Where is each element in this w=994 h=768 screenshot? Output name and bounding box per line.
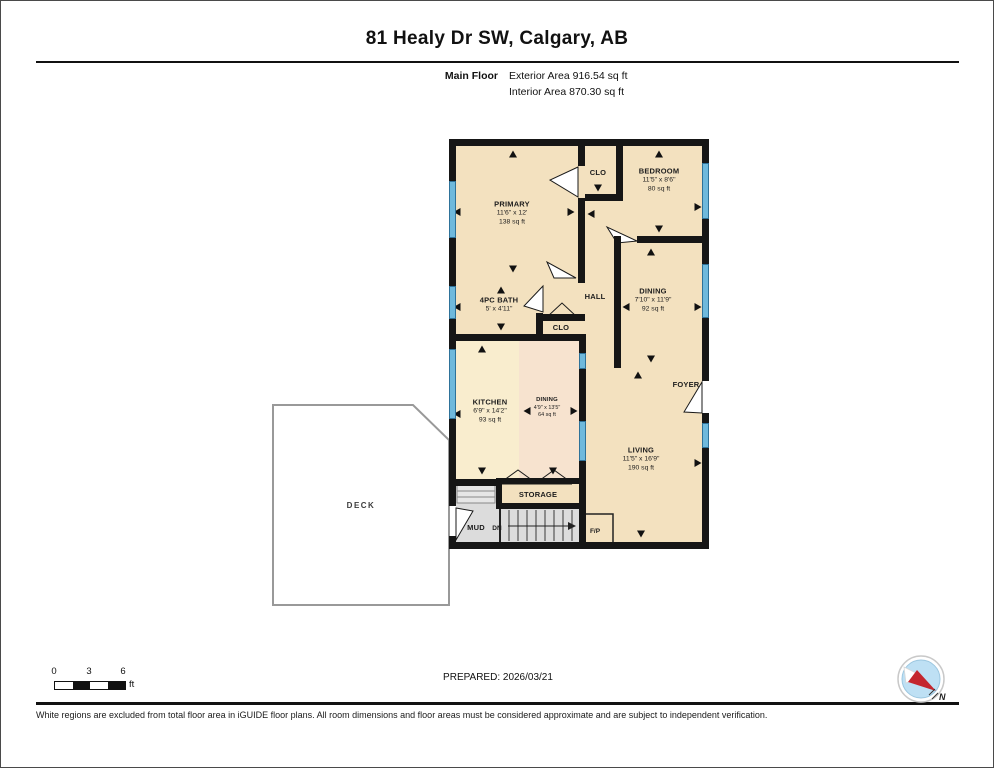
wall-segment <box>578 146 585 166</box>
compass-n-label: N <box>939 692 946 702</box>
room-label-closet-top: CLO <box>590 168 606 178</box>
scale-unit: ft <box>129 679 134 690</box>
room-label-bedroom: BEDROOM 11'5" x 8'6" 80 sq ft <box>639 166 680 193</box>
compass-icon: N <box>898 656 946 702</box>
wall-segment <box>449 536 456 542</box>
floorplan-page: 81 Healy Dr SW, Calgary, AB Main Floor E… <box>0 0 994 768</box>
room-label-hall: HALL <box>585 292 606 302</box>
room-label-storage: STORAGE <box>519 490 557 500</box>
wall-segment <box>449 419 456 506</box>
header-divider <box>36 61 959 63</box>
wall-segment <box>449 479 498 486</box>
wall-segment <box>614 236 621 368</box>
room-label-primary: PRIMARY 11'6" x 12' 138 sq ft <box>494 199 530 226</box>
wall-segment <box>578 198 585 283</box>
room-label-kitchen: KITCHEN 6'9" x 14'2" 93 sq ft <box>473 397 508 424</box>
wall-segment <box>496 478 579 484</box>
wall-segment <box>616 146 623 201</box>
room-label-foyer: FOYER <box>673 380 700 390</box>
room-label-living: LIVING 11'5" x 16'9" 190 sq ft <box>623 445 660 472</box>
fireplace-label: F/P <box>590 528 600 536</box>
footer-divider <box>36 702 959 705</box>
wall-segment <box>449 238 456 286</box>
scale-tick-0: 0 <box>44 666 64 677</box>
compass-needle-white <box>904 667 922 683</box>
room-label-dining-nook: DINING 4'9" x 13'5" 64 sq ft <box>534 397 561 419</box>
page-title: 81 Healy Dr SW, Calgary, AB <box>1 28 993 50</box>
exterior-area: Exterior Area 916.54 sq ft <box>509 70 627 82</box>
scale-tick-3: 3 <box>79 666 99 677</box>
prepared-date: PREPARED: 2026/03/21 <box>361 672 635 683</box>
wall-segment <box>702 448 709 542</box>
window <box>702 264 709 318</box>
room-label-bath: 4PC BATH 5' x 4'11" <box>480 296 519 315</box>
wall-segment <box>449 334 586 341</box>
window <box>449 286 456 319</box>
wall-segment <box>543 314 585 321</box>
scale-tick-6: 6 <box>113 666 133 677</box>
window <box>449 349 456 419</box>
window <box>702 423 709 448</box>
interior-area: Interior Area 870.30 sq ft <box>509 86 624 98</box>
wall-segment <box>702 413 709 423</box>
room-label-deck: DECK <box>347 501 376 511</box>
disclaimer-text: White regions are excluded from total fl… <box>36 710 966 720</box>
window <box>579 421 586 461</box>
window <box>579 353 586 369</box>
scale-bar <box>54 681 126 690</box>
floor-label: Main Floor <box>371 70 498 82</box>
room-label-dining: DINING 7'10" x 11'9" 92 sq ft <box>635 286 672 313</box>
compass-needle-red <box>908 670 936 691</box>
wall-segment <box>449 139 709 146</box>
wall-segment <box>449 146 456 181</box>
wall-segment <box>637 236 709 243</box>
room-label-closet-hall: CLO <box>553 323 569 333</box>
room-label-mud: MUD <box>467 523 485 533</box>
stairs-dn-label: DN <box>492 525 501 533</box>
wall-segment <box>702 318 709 381</box>
wall-segment <box>702 146 709 163</box>
wall-segment <box>496 503 579 509</box>
window <box>449 181 456 238</box>
window <box>702 163 709 219</box>
